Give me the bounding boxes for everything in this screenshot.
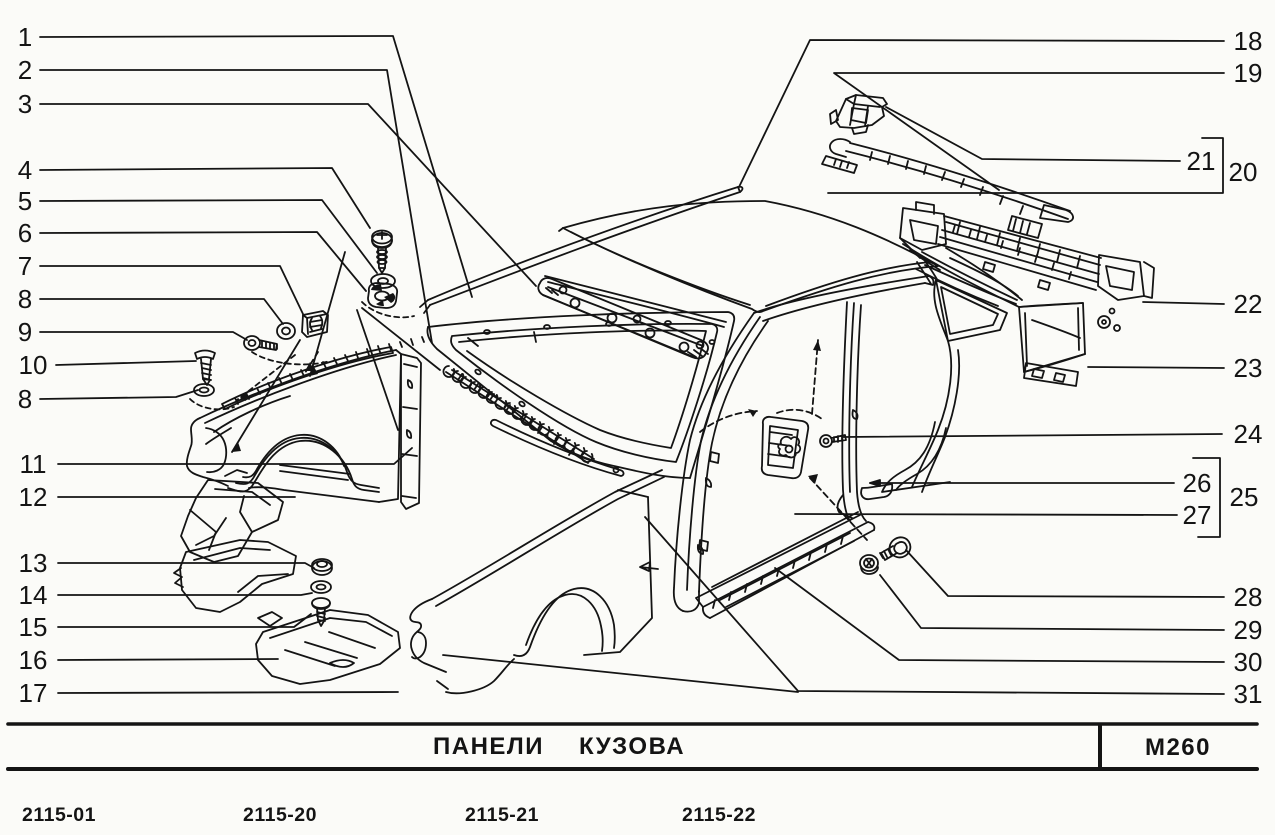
- svg-text:25: 25: [1230, 482, 1259, 512]
- svg-text:15: 15: [19, 612, 48, 642]
- svg-text:28: 28: [1234, 582, 1263, 612]
- svg-text:22: 22: [1234, 289, 1263, 319]
- svg-text:2115-21: 2115-21: [465, 804, 539, 826]
- svg-text:14: 14: [19, 580, 48, 610]
- svg-text:17: 17: [19, 678, 48, 708]
- svg-text:2115-20: 2115-20: [243, 804, 317, 826]
- svg-text:31: 31: [1234, 679, 1263, 709]
- svg-text:20: 20: [1229, 157, 1258, 187]
- svg-text:8: 8: [18, 384, 32, 414]
- svg-text:16: 16: [19, 645, 48, 675]
- svg-text:19: 19: [1234, 58, 1263, 88]
- svg-text:30: 30: [1234, 647, 1263, 677]
- svg-text:4: 4: [18, 155, 32, 185]
- svg-text:6: 6: [18, 218, 32, 248]
- svg-text:29: 29: [1234, 615, 1263, 645]
- svg-text:13: 13: [19, 548, 48, 578]
- svg-text:26: 26: [1183, 468, 1212, 498]
- svg-text:23: 23: [1234, 353, 1263, 383]
- svg-text:КУЗОВА: КУЗОВА: [579, 733, 685, 760]
- svg-text:2115-22: 2115-22: [682, 804, 756, 826]
- svg-text:2115-01: 2115-01: [22, 804, 96, 826]
- svg-text:12: 12: [19, 482, 48, 512]
- svg-text:24: 24: [1234, 419, 1263, 449]
- svg-text:2: 2: [18, 55, 32, 85]
- svg-text:27: 27: [1183, 500, 1212, 530]
- svg-text:М260: М260: [1145, 734, 1211, 761]
- svg-text:21: 21: [1187, 146, 1216, 176]
- svg-text:10: 10: [19, 350, 48, 380]
- svg-text:18: 18: [1234, 26, 1263, 56]
- svg-text:ПАНЕЛИ: ПАНЕЛИ: [433, 733, 544, 760]
- svg-text:5: 5: [18, 186, 32, 216]
- svg-text:8: 8: [18, 284, 32, 314]
- svg-text:7: 7: [18, 251, 32, 281]
- svg-text:1: 1: [18, 22, 32, 52]
- svg-text:3: 3: [18, 89, 32, 119]
- svg-text:9: 9: [18, 317, 32, 347]
- svg-text:11: 11: [20, 449, 47, 479]
